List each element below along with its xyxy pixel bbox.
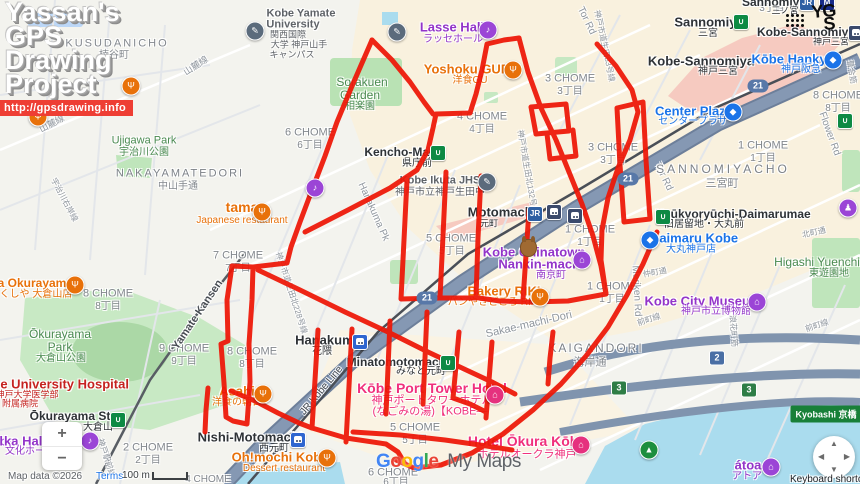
route-3-shield-icon: 3 <box>611 381 627 396</box>
school-icon[interactable]: ✎ <box>388 23 407 42</box>
terms-link[interactable]: Terms <box>96 472 123 482</box>
my-maps-label: My Maps <box>447 451 521 472</box>
pan-right-icon[interactable]: ▶ <box>844 453 850 461</box>
route-3-shield-icon: 3 <box>741 383 757 398</box>
zoom-out-button[interactable]: − <box>42 446 82 471</box>
pan-up-icon[interactable]: ▲ <box>830 440 838 448</box>
tama-restaurant-icon[interactable]: Ψ <box>253 203 272 222</box>
route-2-shield-icon: 2 <box>709 351 725 366</box>
kobe-ikuta-jhs-icon[interactable]: ✎ <box>478 173 497 192</box>
google-logo: Google <box>376 451 438 472</box>
dots-grid-icon <box>786 14 806 29</box>
google-my-maps-canvas[interactable]: KUSUDANICHO楠谷町Kobe YamateUniversity関西国際大… <box>0 0 860 484</box>
project-logo: Yassan's GPS Drawing Project <box>5 0 120 96</box>
hotel-okura-icon[interactable]: ⌂ <box>572 436 591 455</box>
zoom-in-button[interactable]: + <box>42 422 82 446</box>
atoa-aquarium-icon[interactable]: ⌂ <box>762 458 781 477</box>
nankin-machi-icon[interactable]: ⌂ <box>573 251 592 270</box>
route-21-shield-icon: 21 <box>417 292 438 305</box>
okurayama-subway-icon[interactable]: ∪ <box>110 412 126 428</box>
kobe-yamate-university-icon[interactable]: ✎ <box>246 22 265 41</box>
logo-line: Project <box>5 72 120 96</box>
kobe-hankyu-shopping-icon[interactable]: ◆ <box>824 51 843 70</box>
center-plaza-shopping-icon[interactable]: ◆ <box>724 103 743 122</box>
scale-bar <box>152 472 188 480</box>
kushiya-okurayama-restaurant-icon[interactable]: Ψ <box>66 276 85 295</box>
jr-motomachi-icon[interactable]: JR <box>527 206 543 222</box>
kyobashi-sign-icon[interactable]: Kyobashi 京橋 <box>790 406 860 423</box>
scale-label: 100 m <box>122 471 150 481</box>
kobe-city-museum-icon[interactable]: ⌂ <box>748 293 767 312</box>
kyukyoryuchi-subway-icon[interactable]: ∪ <box>655 209 671 225</box>
bunka-hall-icon[interactable]: ♪ <box>81 432 100 451</box>
poi-icon[interactable]: ♟ <box>839 199 858 218</box>
horse-marker-icon[interactable] <box>520 239 537 257</box>
ohmochi-dessert-icon[interactable]: Ψ <box>318 449 337 468</box>
hanakuma-train-icon[interactable] <box>352 334 368 350</box>
train-motomachi-icon[interactable] <box>546 204 562 220</box>
zoom-control[interactable]: + − <box>42 422 82 470</box>
poi-icon[interactable]: ♪ <box>306 179 325 198</box>
map-icons-layer: ΨΨΨΨΨΨΨΨ♪♪⌂⌂⌂♪♟◆◆◆⌂⌂✎✎✎▲∪∪∪∪∪∪JRJRM21212… <box>0 0 860 484</box>
map-data-attribution: Map data ©2026 <box>8 472 82 482</box>
train-kobe-sannomiya-icon[interactable] <box>848 25 860 41</box>
sannomiya-subway-icon[interactable]: ∪ <box>733 14 749 30</box>
project-url-banner: http://gpsdrawing.info <box>0 100 133 116</box>
pan-left-icon[interactable]: ◀ <box>818 453 824 461</box>
bakery-riki-restaurant-icon[interactable]: Ψ <box>531 288 550 307</box>
route-21-shield-icon: 21 <box>618 173 639 186</box>
ygs-brand-mark: YG S <box>811 4 837 32</box>
keyboard-shortcuts-link[interactable]: Keyboard shortcuts <box>790 475 860 484</box>
route-21-shield-icon: 21 <box>748 80 769 93</box>
kencho-mae-subway-icon[interactable]: ∪ <box>430 145 446 161</box>
pan-control[interactable]: ▲ ◀ ▶ ▼ <box>813 436 855 478</box>
daimaru-shopping-icon[interactable]: ◆ <box>641 231 660 250</box>
subway-icon[interactable]: ∪ <box>837 113 853 129</box>
restaurant-icon[interactable]: Ψ <box>122 77 141 96</box>
asahi-restaurant-icon[interactable]: Ψ <box>254 385 273 404</box>
train-motomachi-icon[interactable] <box>567 208 583 224</box>
google-my-maps-watermark: Google My Maps <box>376 451 521 473</box>
yoshoku-restaurant-icon[interactable]: Ψ <box>504 61 523 80</box>
lasse-hall-icon[interactable]: ♪ <box>479 21 498 40</box>
port-tower-hotel-icon[interactable]: ⌂ <box>486 386 505 405</box>
park-icon[interactable]: ▲ <box>640 441 659 460</box>
pan-down-icon[interactable]: ▼ <box>830 466 838 474</box>
nishi-motomachi-train-icon[interactable] <box>290 432 306 448</box>
minatomotomachi-subway-icon[interactable]: ∪ <box>440 355 456 371</box>
